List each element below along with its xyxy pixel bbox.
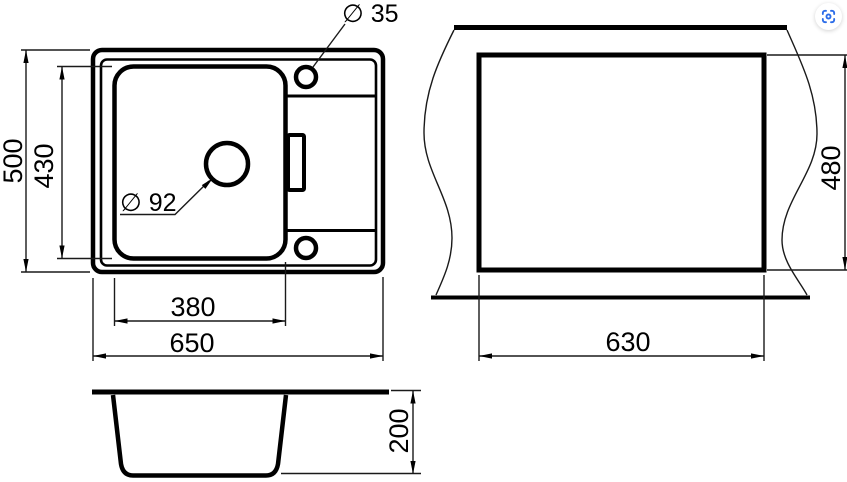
cutout-outline bbox=[479, 55, 764, 270]
top-view: ∅ 35 ∅ 92 500 bbox=[0, 0, 399, 361]
cutout-height-dimension: 480 bbox=[767, 55, 847, 270]
cutout-width-dimension: 630 bbox=[479, 275, 764, 361]
tap-hole-top bbox=[296, 67, 316, 87]
arrowhead bbox=[59, 246, 64, 259]
bowl-outline bbox=[115, 67, 286, 259]
arrowhead bbox=[842, 257, 847, 270]
overall-width-label: 650 bbox=[169, 328, 214, 358]
side-depth-label: 200 bbox=[384, 408, 414, 453]
tap-hole-dimension: ∅ 35 bbox=[313, 0, 399, 67]
side-view: 200 bbox=[92, 391, 421, 476]
arrowhead bbox=[115, 318, 128, 323]
arrowhead bbox=[842, 55, 847, 68]
drawing-canvas: ∅ 35 ∅ 92 500 bbox=[0, 0, 847, 482]
break-line-right bbox=[782, 30, 817, 295]
arrowhead bbox=[59, 67, 64, 80]
bowl-depth-dimension: 430 bbox=[29, 67, 112, 259]
cutout-height-label: 480 bbox=[816, 145, 846, 190]
side-depth-dimension: 200 bbox=[281, 391, 421, 475]
drain-dimension: ∅ 92 bbox=[120, 178, 213, 217]
bowl-width-label: 380 bbox=[170, 292, 215, 322]
overall-width-dimension: 650 bbox=[93, 277, 383, 361]
arrowhead bbox=[751, 353, 764, 358]
arrowhead bbox=[273, 318, 286, 323]
drain-diameter-label: ∅ 92 bbox=[120, 189, 177, 217]
tap-hole-diameter-label: ∅ 35 bbox=[342, 0, 399, 28]
arrowhead bbox=[370, 353, 383, 358]
cutout-width-label: 630 bbox=[605, 327, 650, 357]
arrowhead bbox=[410, 391, 415, 404]
sink-technical-drawing: ∅ 35 ∅ 92 500 bbox=[0, 0, 847, 482]
bowl-profile bbox=[113, 395, 286, 476]
arrowhead bbox=[479, 353, 492, 358]
cutout-view: 480 630 bbox=[424, 28, 847, 362]
break-line-left bbox=[424, 30, 454, 295]
overall-depth-label: 500 bbox=[0, 138, 28, 183]
camera-scan-icon bbox=[820, 8, 837, 25]
arrowhead bbox=[93, 353, 106, 358]
visual-search-button[interactable] bbox=[815, 3, 842, 30]
overflow-notch bbox=[288, 135, 304, 190]
arrowhead bbox=[23, 50, 28, 63]
arrowhead bbox=[410, 461, 415, 474]
arrowhead bbox=[23, 259, 28, 272]
tap-hole-bottom bbox=[296, 238, 316, 258]
bowl-depth-label: 430 bbox=[29, 143, 59, 188]
